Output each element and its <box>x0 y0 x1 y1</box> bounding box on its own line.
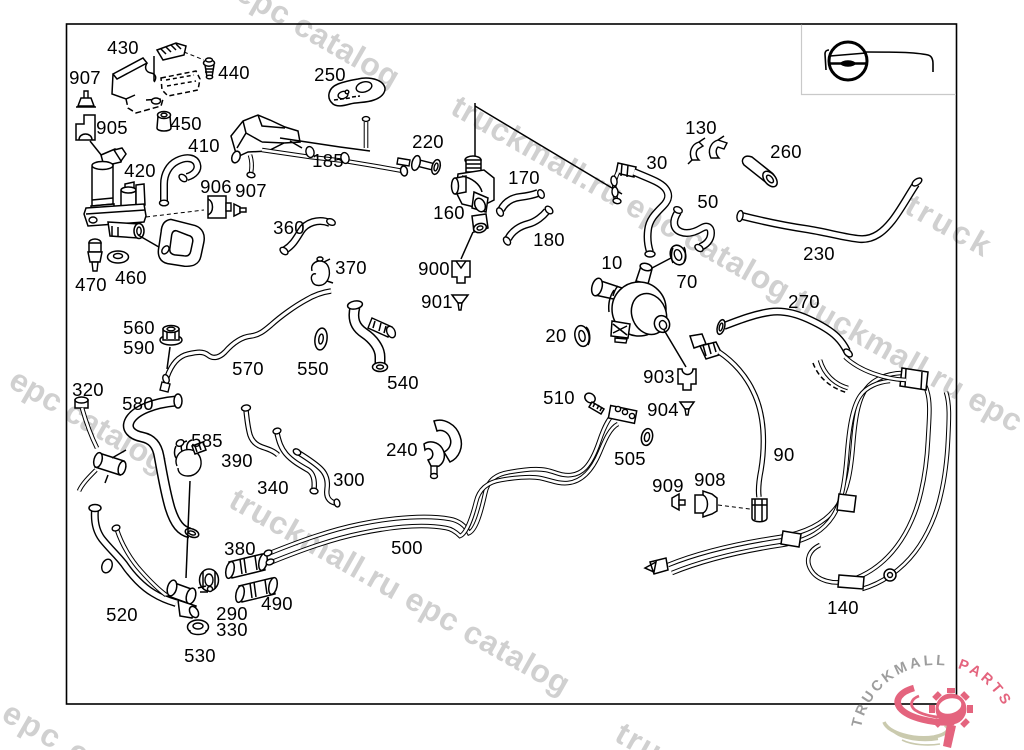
svg-text:170: 170 <box>508 167 540 188</box>
svg-text:300: 300 <box>333 469 365 490</box>
svg-text:550: 550 <box>297 358 329 379</box>
svg-text:540: 540 <box>387 372 419 393</box>
svg-text:140: 140 <box>827 597 859 618</box>
svg-text:500: 500 <box>391 537 423 558</box>
svg-text:901: 901 <box>421 291 453 312</box>
svg-text:440: 440 <box>218 62 250 83</box>
svg-text:906: 906 <box>200 176 232 197</box>
svg-text:30: 30 <box>646 152 667 173</box>
svg-text:907: 907 <box>235 180 267 201</box>
svg-text:10: 10 <box>601 252 622 273</box>
svg-text:900: 900 <box>418 258 450 279</box>
svg-text:360: 360 <box>273 217 305 238</box>
svg-text:330: 330 <box>216 619 248 640</box>
svg-text:220: 220 <box>412 131 444 152</box>
svg-text:450: 450 <box>170 113 202 134</box>
svg-text:410: 410 <box>188 135 220 156</box>
svg-text:260: 260 <box>770 141 802 162</box>
svg-text:130: 130 <box>685 117 717 138</box>
svg-text:903: 903 <box>643 366 675 387</box>
svg-text:270: 270 <box>788 291 820 312</box>
svg-text:530: 530 <box>184 645 216 666</box>
svg-text:909: 909 <box>652 475 684 496</box>
svg-text:580: 580 <box>122 393 154 414</box>
svg-text:390: 390 <box>221 450 253 471</box>
svg-text:160: 160 <box>433 202 465 223</box>
svg-text:180: 180 <box>533 229 565 250</box>
svg-text:50: 50 <box>697 191 718 212</box>
svg-text:460: 460 <box>115 267 147 288</box>
svg-text:585: 585 <box>191 430 223 451</box>
svg-text:250: 250 <box>314 64 346 85</box>
svg-text:905: 905 <box>96 117 128 138</box>
svg-text:904: 904 <box>647 399 679 420</box>
svg-text:908: 908 <box>694 469 726 490</box>
svg-text:90: 90 <box>773 444 794 465</box>
svg-text:590: 590 <box>123 337 155 358</box>
svg-text:185: 185 <box>312 150 344 171</box>
svg-text:560: 560 <box>123 317 155 338</box>
svg-text:510: 510 <box>543 387 575 408</box>
svg-text:490: 490 <box>261 593 293 614</box>
svg-text:320: 320 <box>72 379 104 400</box>
svg-text:340: 340 <box>257 477 289 498</box>
svg-text:370: 370 <box>335 257 367 278</box>
svg-text:430: 430 <box>107 37 139 58</box>
svg-text:520: 520 <box>106 604 138 625</box>
svg-text:230: 230 <box>803 243 835 264</box>
svg-text:470: 470 <box>75 274 107 295</box>
svg-text:505: 505 <box>614 448 646 469</box>
svg-text:240: 240 <box>386 439 418 460</box>
svg-text:907: 907 <box>69 67 101 88</box>
svg-text:380: 380 <box>224 538 256 559</box>
svg-text:570: 570 <box>232 358 264 379</box>
svg-text:20: 20 <box>545 325 566 346</box>
svg-text:420: 420 <box>124 160 156 181</box>
svg-text:70: 70 <box>676 271 697 292</box>
